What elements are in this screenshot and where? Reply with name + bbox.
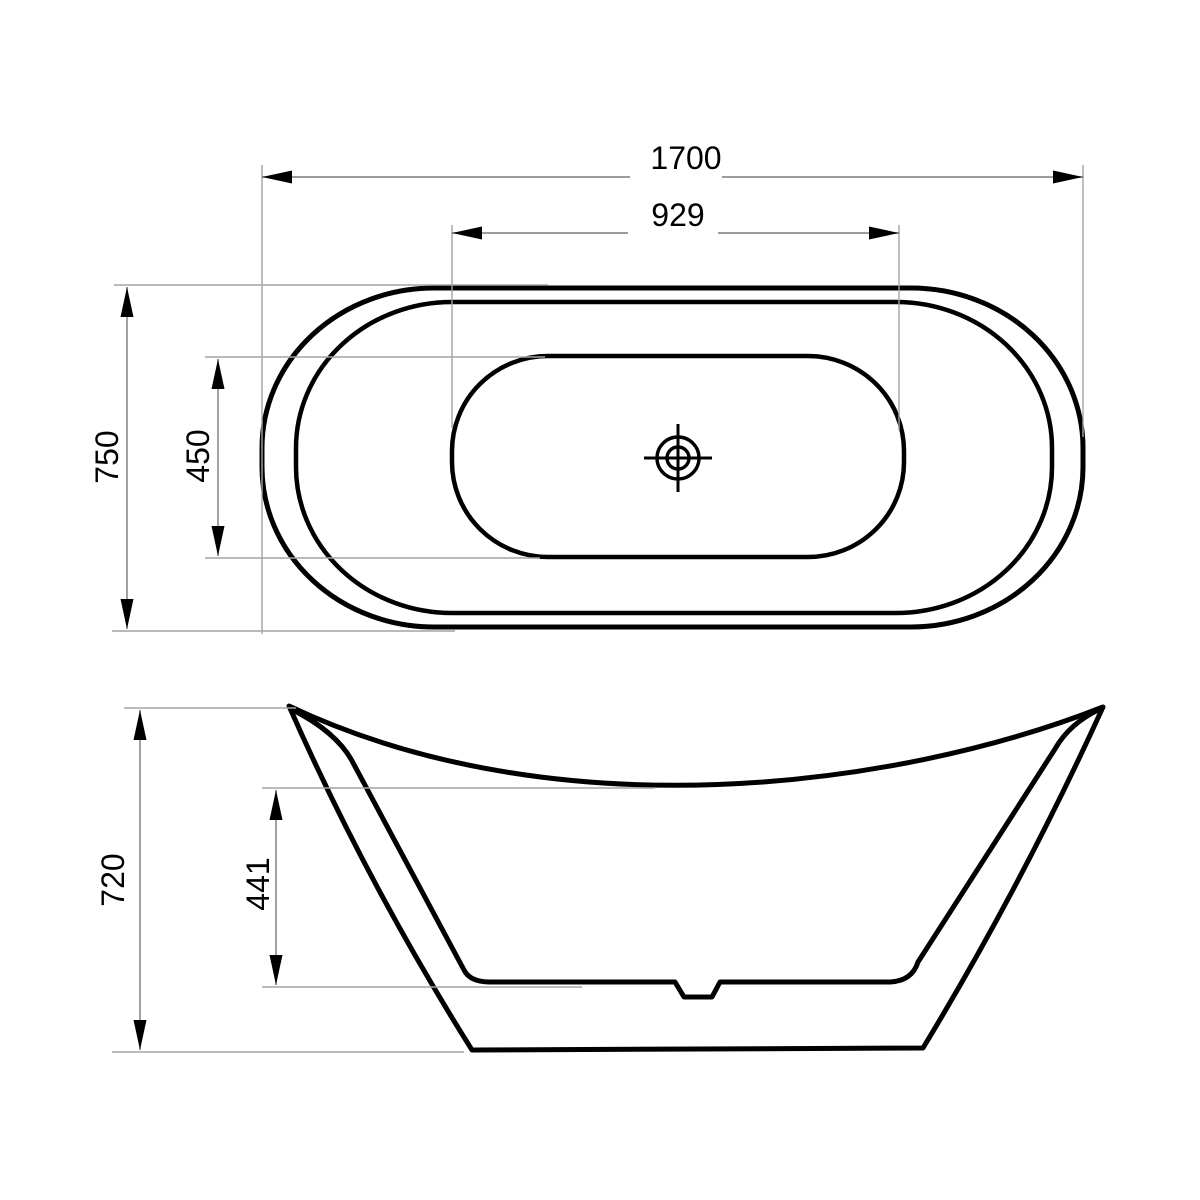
bathtub-dimension-drawing: 1700 929 750 450 bbox=[0, 0, 1200, 1200]
dimension-label: 441 bbox=[240, 857, 276, 910]
drawing-canvas: 1700 929 750 450 bbox=[0, 0, 1200, 1200]
dimension-label: 720 bbox=[95, 853, 131, 906]
dimension-label: 450 bbox=[180, 429, 216, 482]
drain-symbol bbox=[644, 424, 712, 492]
dimension-label: 750 bbox=[89, 430, 125, 483]
side-view: 720 441 bbox=[95, 706, 1103, 1052]
dimension-overall-width: 750 bbox=[89, 285, 548, 631]
dimension-label: 1700 bbox=[650, 140, 721, 176]
dimension-basin-width: 450 bbox=[180, 357, 545, 558]
dimension-overall-height: 720 bbox=[95, 708, 464, 1052]
dimension-basin-length: 929 bbox=[452, 197, 899, 430]
dimension-label: 929 bbox=[651, 197, 704, 233]
top-view: 1700 929 750 450 bbox=[89, 140, 1083, 634]
dimension-inner-depth: 441 bbox=[240, 788, 655, 987]
